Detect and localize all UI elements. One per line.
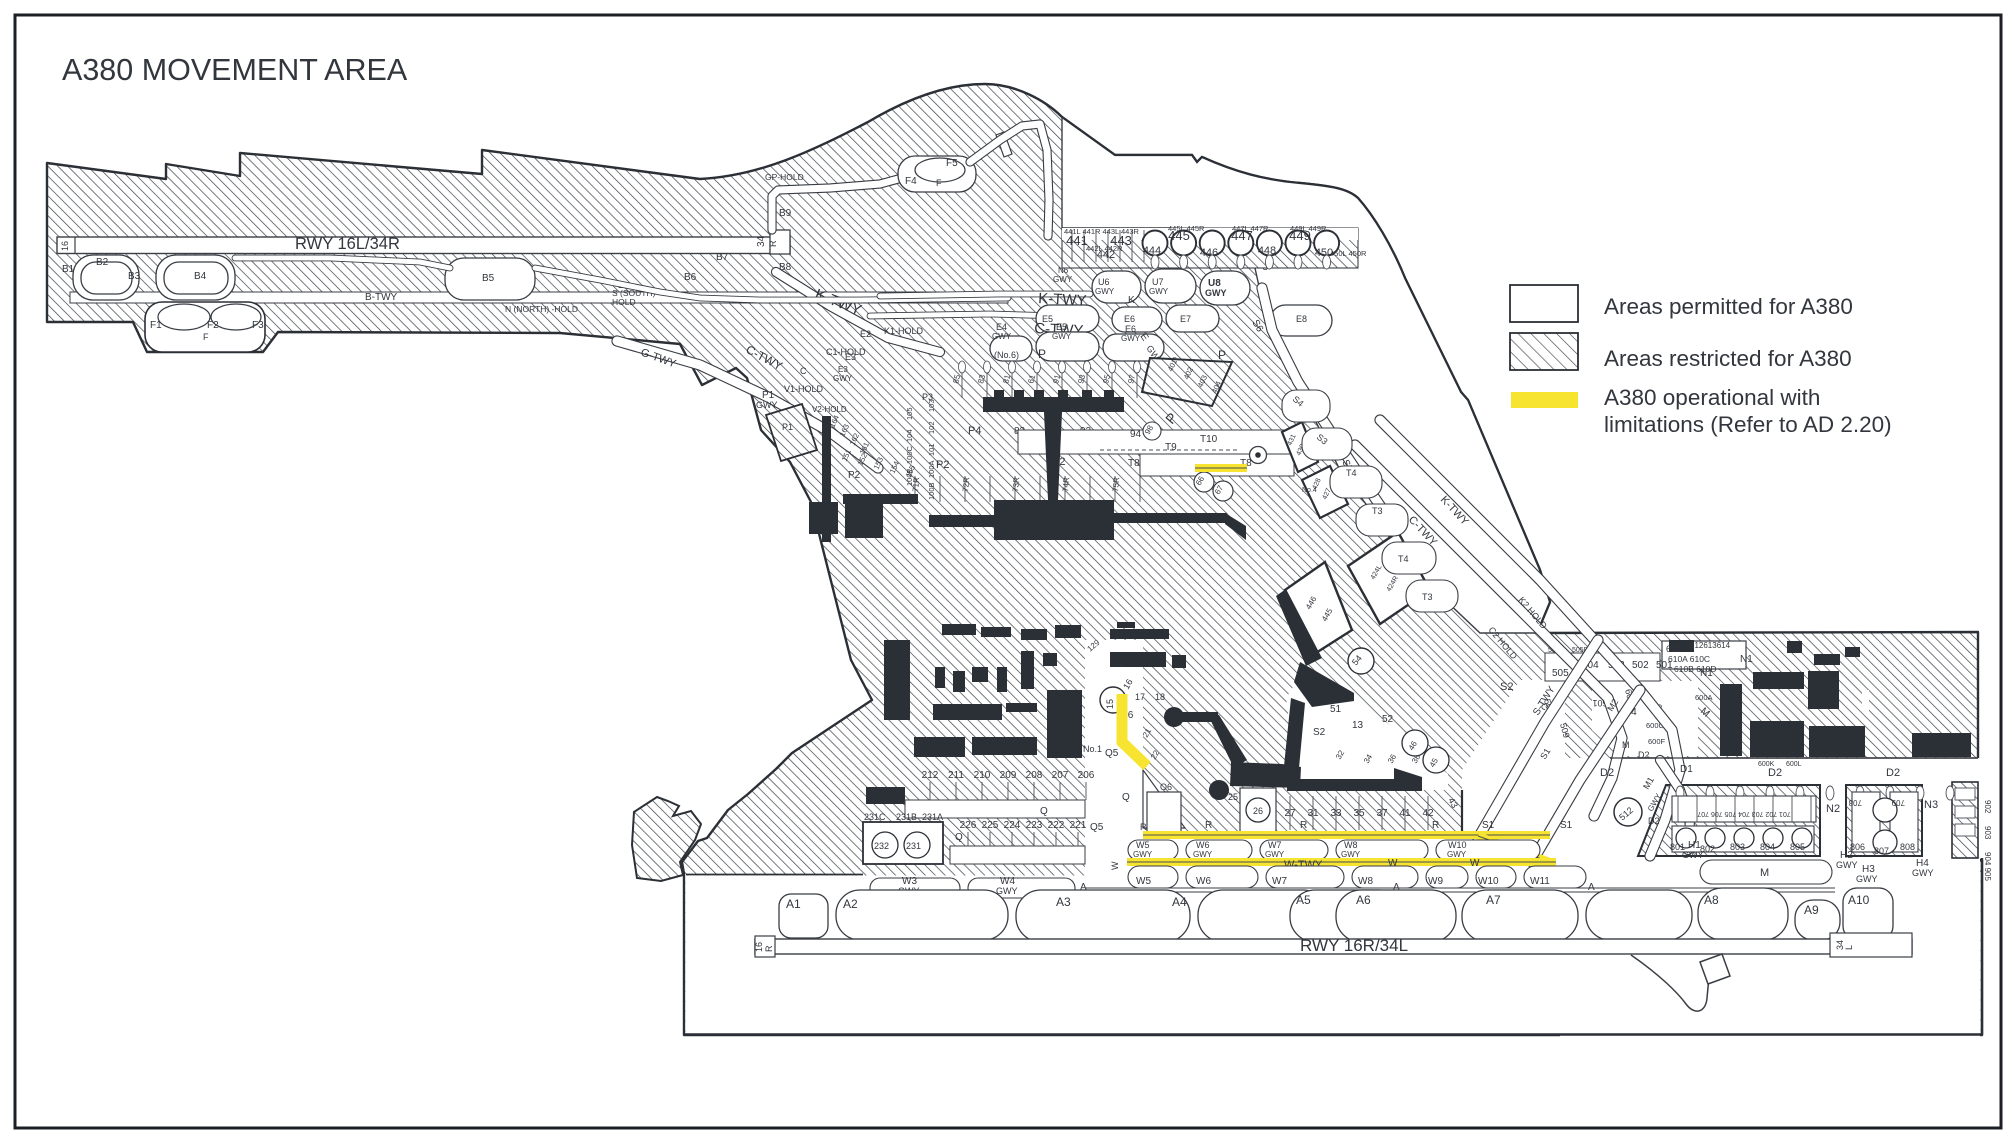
svg-text:S2: S2 xyxy=(1500,681,1513,693)
svg-text:446: 446 xyxy=(1200,247,1218,259)
svg-text:600A: 600A xyxy=(1695,693,1713,702)
svg-text:450L 450R: 450L 450R xyxy=(1330,249,1367,258)
svg-text:GWY: GWY xyxy=(1856,874,1878,884)
svg-text:A3: A3 xyxy=(1056,895,1071,909)
svg-text:E4: E4 xyxy=(996,322,1007,332)
svg-text:100B: 100B xyxy=(927,482,936,500)
svg-text:37: 37 xyxy=(1376,808,1388,819)
svg-text:E7: E7 xyxy=(1180,314,1191,324)
svg-text:L: L xyxy=(1844,945,1854,950)
svg-text:E6: E6 xyxy=(1125,324,1136,334)
svg-text:17: 17 xyxy=(1135,692,1145,702)
svg-text:222: 222 xyxy=(1048,820,1065,831)
svg-text:B4: B4 xyxy=(194,271,207,282)
svg-text:701 702 703 704 705 706 707: 701 702 703 704 705 706 707 xyxy=(1697,810,1791,817)
svg-text:18: 18 xyxy=(1155,692,1165,702)
svg-text:F: F xyxy=(936,178,942,188)
svg-text:limitations (Refer to AD 2.20): limitations (Refer to AD 2.20) xyxy=(1604,412,1892,437)
svg-text:73R: 73R xyxy=(1011,477,1021,493)
svg-text:A9: A9 xyxy=(1804,903,1819,917)
svg-text:GWY: GWY xyxy=(1052,332,1072,341)
svg-text:E6: E6 xyxy=(1124,314,1135,324)
svg-text:33: 33 xyxy=(1330,808,1342,819)
svg-text:445L 445R: 445L 445R xyxy=(1168,224,1205,233)
svg-text:102: 102 xyxy=(927,421,936,434)
svg-text:A380 MOVEMENT AREA: A380 MOVEMENT AREA xyxy=(62,53,408,87)
svg-text:444: 444 xyxy=(1143,245,1161,257)
svg-text:RWY 16L/34R: RWY 16L/34R xyxy=(295,235,400,253)
svg-text:GWY: GWY xyxy=(1205,288,1227,298)
svg-text:W: W xyxy=(1110,861,1120,870)
svg-text:D2: D2 xyxy=(1886,767,1900,779)
svg-text:No.4: No.4 xyxy=(1302,487,1317,494)
svg-text:M: M xyxy=(1760,867,1769,879)
svg-text:GWY: GWY xyxy=(996,886,1018,896)
svg-text:708: 708 xyxy=(1848,798,1862,807)
svg-text:N (NORTH) -HOLD: N (NORTH) -HOLD xyxy=(505,304,578,314)
svg-text:72R: 72R xyxy=(961,477,971,493)
svg-text:W8: W8 xyxy=(1358,876,1373,887)
svg-text:M: M xyxy=(1622,740,1630,750)
svg-text:103: 103 xyxy=(927,399,936,412)
svg-text:A5: A5 xyxy=(1296,893,1311,907)
svg-text:GWY: GWY xyxy=(1682,850,1704,860)
svg-text:600F: 600F xyxy=(1648,737,1666,746)
svg-text:GWY: GWY xyxy=(1836,860,1858,870)
svg-text:W7: W7 xyxy=(1272,876,1287,887)
svg-text:W6: W6 xyxy=(1196,840,1210,850)
svg-text:A8: A8 xyxy=(1704,893,1719,907)
svg-text:803: 803 xyxy=(1730,842,1745,852)
svg-text:41: 41 xyxy=(1399,808,1411,819)
svg-text:221: 221 xyxy=(1070,820,1087,831)
svg-text:F5: F5 xyxy=(946,158,958,169)
svg-text:26: 26 xyxy=(1253,806,1263,816)
svg-text:105: 105 xyxy=(905,407,914,420)
svg-text:GWY: GWY xyxy=(1447,850,1467,859)
svg-text:P: P xyxy=(1038,347,1046,361)
svg-text:225: 225 xyxy=(982,820,999,831)
svg-text:208: 208 xyxy=(1026,770,1043,781)
svg-text:GWY: GWY xyxy=(1133,850,1153,859)
svg-text:P4: P4 xyxy=(968,425,981,437)
svg-text:808: 808 xyxy=(1900,842,1915,852)
svg-text:223: 223 xyxy=(1026,820,1043,831)
svg-text:W6: W6 xyxy=(1196,876,1211,887)
svg-text:GWY: GWY xyxy=(1265,850,1285,859)
svg-text:612613614: 612613614 xyxy=(1690,641,1731,650)
svg-text:U6: U6 xyxy=(1098,277,1110,287)
svg-text:35: 35 xyxy=(1353,808,1365,819)
svg-text:P2: P2 xyxy=(848,470,861,481)
svg-text:S1: S1 xyxy=(1560,820,1573,831)
svg-text:F: F xyxy=(203,332,209,342)
svg-text:P1: P1 xyxy=(782,422,793,432)
svg-text:224: 224 xyxy=(1004,820,1021,831)
svg-text:P: P xyxy=(1218,348,1226,362)
svg-text:13: 13 xyxy=(1352,720,1364,731)
svg-text:N3: N3 xyxy=(1924,799,1938,811)
svg-text:B-TWY: B-TWY xyxy=(365,292,398,303)
svg-text:W10: W10 xyxy=(1478,876,1499,887)
svg-text:610A 610C: 610A 610C xyxy=(1668,654,1710,664)
svg-text:100C: 100C xyxy=(905,445,914,464)
svg-text:449L 449R: 449L 449R xyxy=(1290,224,1327,233)
svg-text:R: R xyxy=(1300,820,1307,831)
svg-text:902: 902 xyxy=(1983,800,1992,814)
svg-text:611: 611 xyxy=(1666,644,1680,654)
svg-text:T8: T8 xyxy=(1128,458,1140,469)
svg-text:A4: A4 xyxy=(1172,895,1187,909)
svg-text:447L 447R: 447L 447R xyxy=(1232,224,1269,233)
svg-text:31: 31 xyxy=(1307,808,1319,819)
svg-text:E3: E3 xyxy=(845,352,856,362)
svg-text:502: 502 xyxy=(1632,660,1649,671)
svg-text:212: 212 xyxy=(922,770,939,781)
svg-text:GWY: GWY xyxy=(1095,287,1115,296)
svg-text:HOLD: HOLD xyxy=(612,297,636,307)
svg-text:R: R xyxy=(1432,820,1439,831)
svg-text:231C: 231C xyxy=(864,812,886,822)
svg-text:B3: B3 xyxy=(128,271,141,282)
svg-text:100A: 100A xyxy=(927,460,936,478)
svg-text:R: R xyxy=(768,240,778,247)
svg-text:W11: W11 xyxy=(1530,876,1550,887)
svg-text:W7: W7 xyxy=(1268,840,1282,850)
svg-text:B5: B5 xyxy=(482,273,495,284)
svg-text:904 905: 904 905 xyxy=(1983,852,1992,881)
svg-text:B2: B2 xyxy=(96,257,109,268)
svg-text:52: 52 xyxy=(1382,714,1394,725)
svg-text:A380 operational with: A380 operational with xyxy=(1604,385,1820,410)
svg-text:E5: E5 xyxy=(1056,322,1067,332)
svg-text:V1-HOLD: V1-HOLD xyxy=(784,384,824,394)
svg-text:210: 210 xyxy=(974,770,991,781)
svg-text:100E: 100E xyxy=(905,468,914,486)
svg-text:U7: U7 xyxy=(1152,277,1164,287)
svg-text:P2: P2 xyxy=(936,459,949,471)
svg-text:34: 34 xyxy=(756,235,767,247)
svg-text:104: 104 xyxy=(905,429,914,442)
svg-text:B9: B9 xyxy=(779,208,792,219)
svg-text:GWY: GWY xyxy=(756,400,778,410)
svg-text:25: 25 xyxy=(1228,792,1238,802)
svg-text:D2: D2 xyxy=(1648,816,1660,826)
svg-text:(No.6): (No.6) xyxy=(994,350,1019,360)
svg-text:R: R xyxy=(1205,820,1212,831)
svg-text:R: R xyxy=(1140,822,1147,832)
svg-text:442L 442R: 442L 442R xyxy=(1086,244,1123,253)
svg-text:T3: T3 xyxy=(1422,592,1433,602)
svg-text:RWY 16R/34L: RWY 16R/34L xyxy=(1300,936,1408,955)
svg-text:GWY: GWY xyxy=(1193,850,1213,859)
svg-text:16: 16 xyxy=(754,942,764,952)
svg-text:GWY: GWY xyxy=(1912,868,1934,878)
svg-text:T3: T3 xyxy=(1372,506,1383,516)
svg-text:B6: B6 xyxy=(684,272,697,283)
svg-text:C: C xyxy=(800,366,807,376)
svg-text:27: 27 xyxy=(1284,808,1296,819)
svg-text:T9: T9 xyxy=(1165,442,1177,453)
svg-text:A1: A1 xyxy=(786,897,801,911)
svg-text:B7: B7 xyxy=(716,252,729,263)
svg-text:42: 42 xyxy=(1422,808,1434,819)
svg-text:W5: W5 xyxy=(1136,840,1150,850)
svg-text:GWY: GWY xyxy=(833,374,853,383)
svg-text:101: 101 xyxy=(927,443,936,456)
svg-text:D2: D2 xyxy=(1600,767,1614,779)
svg-text:206: 206 xyxy=(1078,770,1095,781)
svg-text:232: 232 xyxy=(874,841,889,851)
svg-text:No.1: No.1 xyxy=(1083,744,1102,754)
svg-text:D2: D2 xyxy=(1768,767,1782,779)
svg-text:231: 231 xyxy=(906,841,921,851)
svg-text:Q: Q xyxy=(1122,792,1130,803)
svg-text:209: 209 xyxy=(1000,770,1017,781)
svg-text:F1: F1 xyxy=(150,320,162,331)
svg-text:T4: T4 xyxy=(1346,468,1357,478)
svg-text:Q: Q xyxy=(955,832,963,843)
svg-text:207: 207 xyxy=(1052,770,1069,781)
svg-text:R: R xyxy=(764,945,774,952)
svg-text:600L: 600L xyxy=(1786,761,1802,768)
svg-text:W8: W8 xyxy=(1344,840,1358,850)
svg-text:V2-HOLD: V2-HOLD xyxy=(812,405,847,414)
svg-text:Q6: Q6 xyxy=(1160,782,1172,792)
svg-text:T4: T4 xyxy=(1398,554,1409,564)
svg-text:804: 804 xyxy=(1760,842,1775,852)
svg-text:A6: A6 xyxy=(1356,893,1371,907)
svg-text:D1: D1 xyxy=(1680,764,1693,775)
svg-text:75R: 75R xyxy=(1111,477,1121,493)
svg-text:Areas permitted for A380: Areas permitted for A380 xyxy=(1604,294,1853,319)
svg-text:W9: W9 xyxy=(1428,876,1443,887)
svg-text:GWY: GWY xyxy=(1149,287,1169,296)
svg-text:E3: E3 xyxy=(838,365,848,374)
svg-text:231A: 231A xyxy=(922,812,943,822)
svg-text:F2: F2 xyxy=(207,320,219,331)
svg-text:E2: E2 xyxy=(860,329,871,339)
svg-text:S1: S1 xyxy=(1482,820,1495,831)
svg-text:709: 709 xyxy=(1891,798,1905,807)
svg-text:K: K xyxy=(1128,295,1135,306)
svg-text:F3: F3 xyxy=(252,320,264,331)
svg-text:805: 805 xyxy=(1790,842,1805,852)
svg-text:Q5: Q5 xyxy=(1105,748,1119,759)
svg-text:S2: S2 xyxy=(1313,727,1326,738)
svg-text:Q: Q xyxy=(1040,806,1048,817)
svg-text:Areas restricted for A380: Areas restricted for A380 xyxy=(1604,346,1852,371)
svg-text:505: 505 xyxy=(1552,668,1569,679)
svg-text:94: 94 xyxy=(1130,429,1142,440)
svg-text:N1: N1 xyxy=(1740,654,1753,665)
svg-text:B1: B1 xyxy=(62,264,75,275)
svg-text:GWY: GWY xyxy=(1053,275,1073,284)
svg-text:N1: N1 xyxy=(1700,668,1713,679)
svg-text:K1-HOLD: K1-HOLD xyxy=(884,326,924,336)
svg-text:T10: T10 xyxy=(1200,434,1218,445)
svg-text:W10: W10 xyxy=(1448,840,1467,850)
svg-text:W5: W5 xyxy=(1136,876,1151,887)
svg-text:226: 226 xyxy=(960,820,977,831)
svg-text:903: 903 xyxy=(1983,826,1992,840)
svg-text:GP-HOLD: GP-HOLD xyxy=(765,172,804,182)
svg-text:Q5: Q5 xyxy=(1090,822,1104,833)
svg-text:GWY: GWY xyxy=(1341,850,1361,859)
svg-text:A: A xyxy=(1588,882,1595,893)
svg-text:15: 15 xyxy=(1105,699,1115,709)
svg-text:GWY: GWY xyxy=(992,332,1012,341)
svg-text:F4: F4 xyxy=(905,176,917,187)
svg-text:448: 448 xyxy=(1258,245,1276,257)
svg-text:N2: N2 xyxy=(1826,803,1840,815)
svg-text:GWY: GWY xyxy=(1121,334,1141,343)
svg-text:W: W xyxy=(1470,858,1480,869)
svg-text:441L 441R 443L 443R: 441L 441R 443L 443R xyxy=(1064,227,1140,236)
svg-text:74R: 74R xyxy=(1061,477,1071,493)
svg-text:A7: A7 xyxy=(1486,893,1501,907)
svg-text:16: 16 xyxy=(60,241,70,251)
svg-text:211: 211 xyxy=(948,770,964,781)
svg-text:E8: E8 xyxy=(1296,314,1307,324)
svg-text:231B: 231B xyxy=(896,812,917,822)
svg-text:K-TWY: K-TWY xyxy=(1038,290,1087,310)
svg-text:A2: A2 xyxy=(843,897,858,911)
svg-text:51: 51 xyxy=(1330,704,1342,715)
svg-text:A10: A10 xyxy=(1848,893,1870,907)
svg-text:807: 807 xyxy=(1874,846,1889,856)
